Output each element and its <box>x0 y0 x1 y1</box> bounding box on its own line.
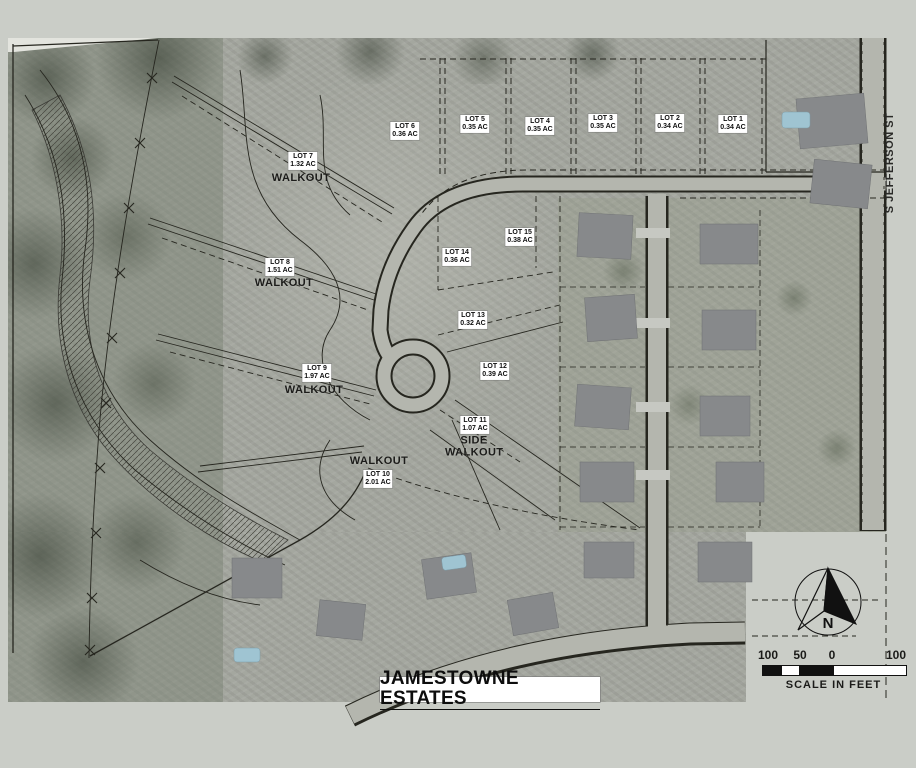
side-walkout-note: SIDE WALKOUT <box>445 435 503 458</box>
plat-map-canvas: LOT 10.34 AC LOT 20.34 AC LOT 30.35 AC L… <box>0 0 916 768</box>
lot-label: LOT 150.38 AC <box>505 228 534 246</box>
lot-label: LOT 120.39 AC <box>480 362 509 380</box>
scale-bar: 100 50 0 100 SCALE IN FEET <box>758 648 910 696</box>
lot-label: LOT 102.01 AC <box>363 470 392 488</box>
lot-label: LOT 30.35 AC <box>588 114 617 132</box>
floodplain-hatch <box>32 95 288 562</box>
north-letter: N <box>823 615 834 632</box>
walkout-note: WALKOUT <box>255 278 313 290</box>
subdivision-title: JAMESTOWNE ESTATES <box>380 677 600 702</box>
north-arrow: N <box>784 556 874 652</box>
scale-tick: 50 <box>793 648 806 662</box>
scale-caption: SCALE IN FEET <box>762 679 905 691</box>
lot-label: LOT 81.51 AC <box>265 258 294 276</box>
scale-tick: 0 <box>829 648 836 662</box>
scale-tick: 100 <box>886 648 906 662</box>
lot-label: LOT 50.35 AC <box>460 115 489 133</box>
street-name-s-jefferson: S JEFFERSON ST <box>884 113 896 214</box>
lot-label: LOT 140.36 AC <box>442 248 471 266</box>
subdivision-title-text: JAMESTOWNE ESTATES <box>380 669 600 710</box>
lot-label: LOT 20.34 AC <box>655 114 684 132</box>
scale-bar-graphic <box>762 665 907 676</box>
lot-label: LOT 91.97 AC <box>302 364 331 382</box>
walkout-note: WALKOUT <box>272 173 330 185</box>
walkout-note: WALKOUT <box>285 385 343 397</box>
scale-tick: 100 <box>758 648 778 662</box>
lot-label: LOT 60.36 AC <box>390 122 419 140</box>
lot-label: LOT 111.07 AC <box>460 416 489 434</box>
lot-label: LOT 40.35 AC <box>525 117 554 135</box>
lot-label: LOT 10.34 AC <box>718 115 747 133</box>
lot-label: LOT 71.32 AC <box>288 152 317 170</box>
walkout-note: WALKOUT <box>350 456 408 468</box>
lot-label: LOT 130.32 AC <box>458 311 487 329</box>
